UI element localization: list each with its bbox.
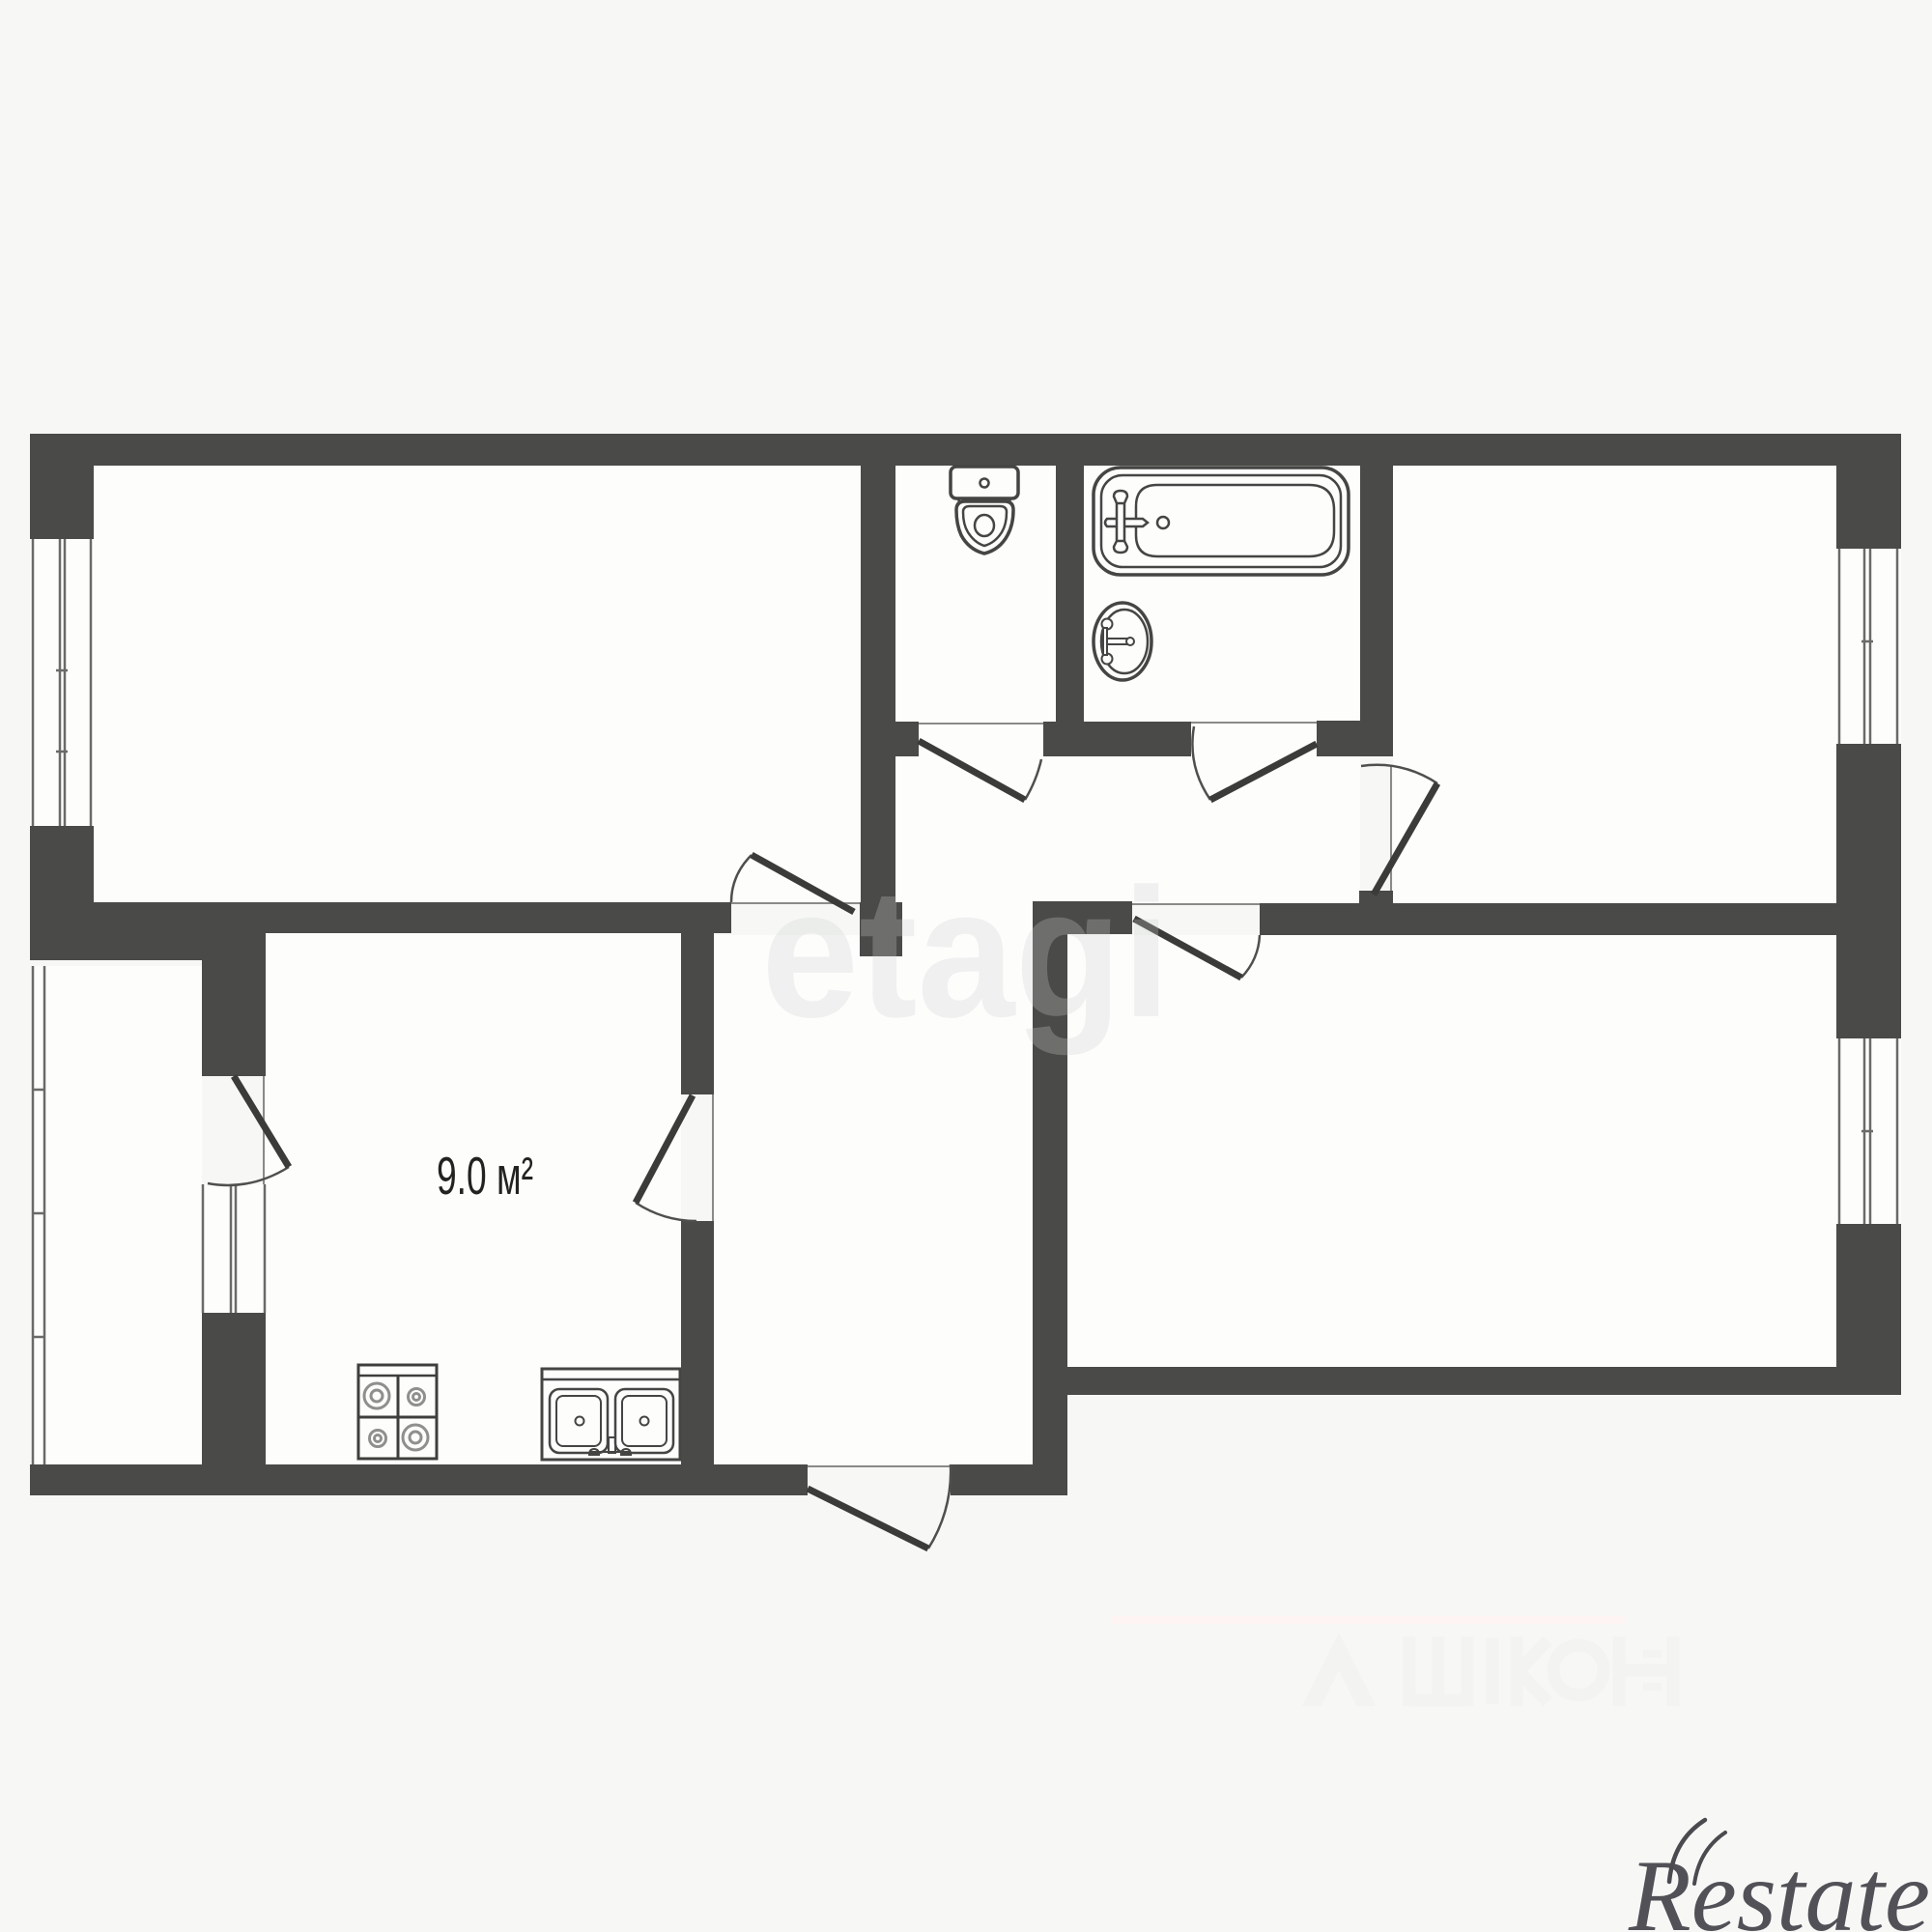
svg-text:Restate: Restate <box>1628 1839 1930 1932</box>
svg-text:etagi: etagi <box>761 851 1171 1056</box>
svg-text:9.0 м²: 9.0 м² <box>437 1146 533 1206</box>
